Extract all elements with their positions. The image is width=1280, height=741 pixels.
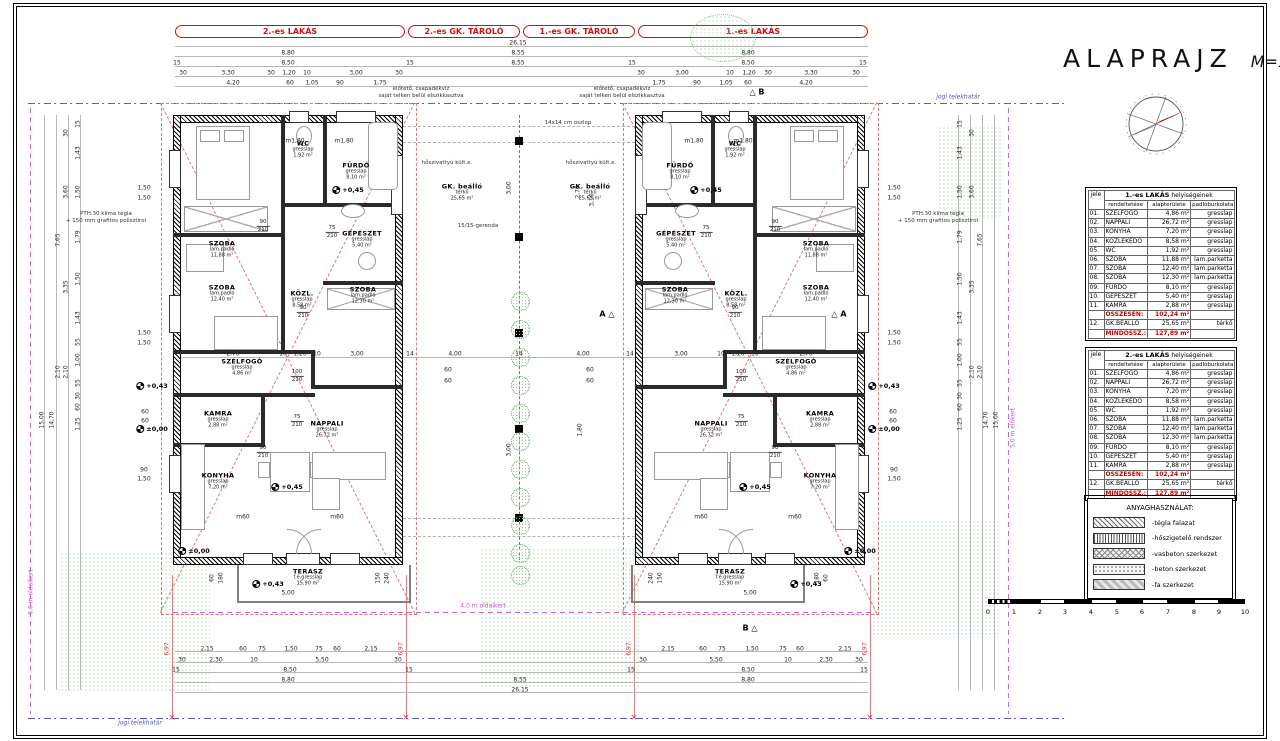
door-width: 90 [257, 445, 270, 452]
row-room: GK.BEÁLLÓ [1104, 480, 1147, 489]
table-row: MINDÖSSZ.:127,89 m² [1088, 489, 1234, 498]
dim-label: 15 [627, 667, 635, 674]
wall [635, 385, 727, 389]
level-icon [252, 580, 260, 588]
annotation: jogi telekhatár [118, 720, 162, 727]
window [718, 553, 752, 565]
room-label: SZOBAlam.padló11,88 m² [803, 241, 829, 260]
wall [635, 281, 715, 285]
table-row: 04.KÖZLEKEDŐ8,58 m²gresslap [1088, 397, 1234, 406]
scalebar-segment [1117, 599, 1142, 604]
row-number: 04. [1088, 397, 1104, 406]
level-marker: ±0,00 [178, 547, 209, 555]
window [336, 111, 376, 123]
material-label: -hőszigetelő rendszer [1152, 534, 1222, 542]
room-area: 1,92 m² [292, 154, 313, 160]
zone-band: 1.-es GK. TÁROLÓ [523, 25, 635, 38]
dim-label: 90 [140, 467, 148, 474]
dim-label: 30 [63, 129, 70, 137]
dim-label: 30 [267, 70, 275, 77]
wall [311, 385, 403, 389]
drawing-sheet: 2.-es LAKÁS2.-es GK. TÁROLÓ1.-es GK. TÁR… [0, 0, 1280, 741]
level-value: +0,43 [878, 382, 899, 390]
dim-label: 4,20 [799, 80, 812, 87]
dim-label: 7,65 [55, 233, 62, 246]
door-height: 210 [326, 232, 339, 240]
door-height: 210 [769, 226, 782, 234]
level-value: +0,43 [262, 580, 283, 588]
row-room: ÖSSZESEN: [1104, 471, 1147, 480]
wardrobe [184, 206, 268, 232]
scalebar-tick: 4 [1089, 608, 1093, 616]
annotation: A △ [599, 310, 614, 319]
room-area: 7,20 m² [804, 486, 837, 492]
dim-label: 15 [75, 120, 82, 128]
dim-label: 1,43 [75, 311, 82, 324]
room-area: 12,40 m² [209, 298, 235, 304]
level-value: ±0,00 [188, 547, 209, 555]
room-area: 12,30 m² [350, 300, 376, 306]
room-table-2: jele 2.-es LAKÁS helyiségeinek rendeltet… [1085, 347, 1237, 501]
level-icon [844, 547, 852, 555]
room-area: 1,92 m² [724, 154, 745, 160]
annotation: előtető, csapadékvíz [393, 86, 450, 92]
dim-label: m1,80 [285, 138, 304, 145]
row-number: 01. [1088, 369, 1104, 378]
row-room: KONYHA [1104, 388, 1147, 397]
dim-label: 8,50 [281, 60, 294, 67]
table-row: ÖSSZESEN:102,24 m² [1088, 471, 1234, 480]
room-area: 15,90 m² [293, 582, 323, 588]
zone-band-label: 2.-es GK. TÁROLÓ [424, 27, 503, 36]
room-area: 8,10 m² [342, 176, 369, 182]
materials-list: -tégla falazat-hőszigetelő rendszer-vasb… [1093, 517, 1227, 590]
level-icon [739, 483, 747, 491]
door-width: 75 [735, 414, 748, 421]
level-icon [868, 382, 876, 390]
row-floor [1191, 329, 1234, 338]
table-row: 05.WC1,92 m²gresslap [1088, 406, 1234, 415]
row-room: KONYHA [1104, 228, 1147, 237]
row-floor: lam.parketta [1191, 434, 1234, 443]
table-title: 2.-es LAKÁS helyiségeinek [1104, 350, 1234, 360]
dim-label: 2,15 [838, 646, 851, 653]
dim-label: m60 [330, 514, 343, 521]
row-number: 08. [1088, 434, 1104, 443]
window [286, 553, 320, 565]
dim-label: 5,50 [315, 657, 328, 664]
dim-line [175, 651, 868, 652]
level-marker: +0,43 [868, 382, 899, 390]
material-swatch [1093, 533, 1145, 544]
row-room: MINDÖSSZ.: [1104, 329, 1147, 338]
door-height: 210 [735, 376, 748, 384]
row-area: 2,88 m² [1147, 301, 1190, 310]
dim-label: 1,43 [75, 146, 82, 159]
shrub [511, 566, 530, 585]
dim-label: 60 [444, 367, 452, 374]
table-row: MINDÖSSZ.:127,89 m² [1088, 329, 1234, 338]
wall [753, 233, 865, 237]
table-row: 02.NAPPALI26,72 m²gresslap [1088, 379, 1234, 388]
pillow [818, 130, 838, 142]
row-number: 01. [1088, 209, 1104, 218]
zone-band-label: 1.-es GK. TÁROLÓ [539, 27, 618, 36]
row-number: 10. [1088, 292, 1104, 301]
material-swatch [1093, 548, 1145, 559]
table-row: ÖSSZESEN:102,24 m² [1088, 311, 1234, 320]
row-number: 11. [1088, 461, 1104, 470]
material-item: -fa szerkezet [1093, 579, 1227, 590]
table-row: 07.SZOBA12,40 m²lam.parketta [1088, 425, 1234, 434]
level-marker: +0,43 [136, 382, 167, 390]
room-area: 11,88 m² [803, 254, 829, 260]
room-area: 12,30 m² [662, 300, 688, 306]
row-area: 127,89 m² [1147, 329, 1190, 338]
room-area: 12,40 m² [803, 298, 829, 304]
row-number: 08. [1088, 274, 1104, 283]
dim-label: 2,10 [63, 365, 70, 378]
annotation: 5,0 m előkert [1010, 408, 1017, 448]
window [678, 553, 708, 565]
row-area: 26,72 m² [1147, 379, 1190, 388]
door-size-label: 75210 [700, 225, 713, 239]
dim-label: 1,00 [75, 353, 82, 366]
dim-label: 2,70 [226, 351, 239, 358]
room-label: TERASZf.é.gresslap15,90 m² [715, 569, 745, 588]
zone-band: 2.-es LAKÁS [175, 25, 405, 38]
dim-line [44, 115, 45, 690]
level-icon [136, 382, 144, 390]
door-size-label: 100210 [291, 369, 304, 383]
row-room: FÜRDŐ [1104, 443, 1147, 452]
row-floor: lam.parketta [1191, 255, 1234, 264]
dim-label: 15 [859, 60, 867, 67]
dim-label: 8,80 [281, 677, 294, 684]
row-floor: gresslap [1191, 209, 1234, 218]
level-icon [136, 425, 144, 433]
row-floor: gresslap [1191, 461, 1234, 470]
door-size-label: 90210 [769, 219, 782, 233]
door-height: 210 [291, 421, 304, 429]
material-swatch [1093, 564, 1145, 575]
room-label: KONYHAgresslap7,20 m² [202, 473, 235, 492]
annotation: PTH.30 klíma tégla [80, 211, 132, 217]
shrub [511, 516, 530, 535]
dim-label: 15 [406, 60, 414, 67]
row-number: 12. [1088, 480, 1104, 489]
scalebar-segment [1194, 599, 1219, 604]
dim-label: 2,10 [55, 365, 62, 378]
dim-label: 1,50 [887, 330, 900, 337]
scalebar-tick: 1 [1012, 608, 1016, 616]
dim-label: 55 [75, 379, 82, 387]
dim-label: 4,20 [226, 80, 239, 87]
dim-label: 2,15 [661, 646, 674, 653]
door-size-label: 75210 [735, 414, 748, 428]
dim-label: 60 [699, 646, 707, 653]
dim-label: 1,50 [137, 476, 150, 483]
annotation: × [402, 713, 410, 723]
door-width: 90 [257, 219, 270, 226]
level-marker: +0,45 [690, 186, 721, 194]
level-icon [690, 186, 698, 194]
dim-label: 75 [315, 646, 323, 653]
room-table-1: jele 1.-es LAKÁS helyiségeinek rendeltet… [1085, 187, 1237, 341]
dim-label: 90 [890, 467, 898, 474]
scalebar-tick: 6 [1140, 608, 1144, 616]
table-col-jele: jele [1088, 190, 1104, 209]
dim-label: 2,30 [209, 657, 222, 664]
dim-label: 240 [648, 572, 655, 583]
table-title-bold: 2.-es LAKÁS [1125, 351, 1169, 359]
row-number [1088, 311, 1104, 320]
row-floor: gresslap [1191, 452, 1234, 461]
door-width: 90 [729, 305, 742, 312]
window [289, 111, 309, 123]
row-floor: gresslap [1191, 406, 1234, 415]
dim-label: 1,50 [75, 272, 82, 285]
dim-label: 60 [75, 403, 82, 411]
material-swatch [1093, 579, 1145, 590]
level-value: +0,45 [749, 483, 770, 491]
material-swatch [1093, 517, 1145, 528]
annotation: + 150 mm grafitos polisztirol [898, 218, 978, 224]
dim-label: 60 [141, 418, 149, 425]
table-row: 09.FÜRDŐ8,10 m²gresslap [1088, 283, 1234, 292]
row-floor: gresslap [1191, 379, 1234, 388]
wall [173, 393, 315, 397]
level-value: +0,45 [342, 186, 363, 194]
window [765, 553, 795, 565]
setback-line [30, 108, 31, 714]
dim-label: 15 [173, 60, 181, 67]
room-area: 4,86 m² [221, 372, 262, 378]
dim-label: 75 [718, 646, 726, 653]
shrub [511, 460, 530, 479]
dim-label: 1,75 [373, 80, 386, 87]
room-label: KAMRAgresslap2,88 m² [806, 411, 834, 430]
bed [214, 316, 278, 350]
level-marker: ±0,00 [844, 547, 875, 555]
dim-label: 3,35 [969, 280, 976, 293]
dim-label: 240 [384, 572, 391, 583]
window [243, 553, 273, 565]
row-number [1088, 489, 1104, 498]
dim-line [68, 115, 69, 690]
row-number: 07. [1088, 425, 1104, 434]
annotation: saját telken belül elszikkasztva [579, 93, 664, 99]
material-item: -beton szerkezet [1093, 564, 1227, 575]
dim-label: 8,55 [511, 60, 524, 67]
dim-label: 90 [693, 80, 701, 87]
dim-label: 3,00 [506, 181, 513, 194]
level-value: ±0,00 [146, 425, 167, 433]
table-title: 1.-es LAKÁS helyiségeinek [1104, 190, 1234, 200]
dim-label: 75 [779, 646, 787, 653]
dim-label: 1,50 [137, 185, 150, 192]
dim-label: 3,35 [63, 280, 70, 293]
row-number: 03. [1088, 228, 1104, 237]
scalebar-tick: 8 [1192, 608, 1196, 616]
scalebar-tick: 5 [1115, 608, 1119, 616]
row-area: 12,30 m² [1147, 434, 1190, 443]
row-area: 8,58 m² [1147, 397, 1190, 406]
scalebar-tick: 7 [1166, 608, 1170, 616]
table-row: 12.GK.BEÁLLÓ25,65 m²térkő [1088, 320, 1234, 329]
room-label: SZÉLFOGÓgresslap4,86 m² [221, 359, 262, 378]
table-row: 11.KAMRA2,88 m²gresslap [1088, 461, 1234, 470]
row-room: SZOBA [1104, 274, 1147, 283]
dim-label: 1,50 [957, 185, 964, 198]
dim-label: 30 [957, 392, 964, 400]
dim-label: 2,70 [799, 351, 812, 358]
dim-label: 60 [239, 646, 247, 653]
dim-label: 15 [957, 120, 964, 128]
row-room: KAMRA [1104, 301, 1147, 310]
dim-label: 14,70 [983, 411, 990, 428]
window [729, 111, 749, 123]
row-area: 8,10 m² [1147, 443, 1190, 452]
materials-legend: ANYAGHASZNÁLAT: -tégla falazat-hőszigete… [1087, 498, 1233, 599]
dim-line [982, 115, 983, 690]
sofa [654, 452, 728, 480]
door-width: 75 [291, 414, 304, 421]
room-label: NAPPALIgresslap26,72 m² [694, 421, 727, 440]
table-row: 09.FÜRDŐ8,10 m²gresslap [1088, 443, 1234, 452]
dim-label: 15 [860, 667, 868, 674]
row-room: KÖZLEKEDŐ [1104, 237, 1147, 246]
dim-label: 1,20 [293, 351, 306, 358]
row-room: GÉPÉSZET [1104, 292, 1147, 301]
dim-label: m1,80 [733, 138, 752, 145]
row-floor: gresslap [1191, 388, 1234, 397]
dim-label: 10 [726, 70, 734, 77]
annotation: PTH.30 klíma tégla [912, 211, 964, 217]
annotation: 4,0 m oldalkert [460, 603, 505, 610]
dim-label: 1,25 [75, 417, 82, 430]
row-floor: lam.parketta [1191, 274, 1234, 283]
dim-label: 2,10 [969, 365, 976, 378]
scalebar-segment [1040, 599, 1065, 604]
dim-label: 150 [375, 572, 382, 583]
annotation: 6,97 [626, 642, 633, 655]
door-width: 100 [291, 369, 304, 376]
dim-label: 30 [75, 392, 82, 400]
room-area: 26,72 m² [694, 434, 727, 440]
table-row: 01.SZÉLFOGÓ4,86 m²gresslap [1088, 209, 1234, 218]
level-marker: +0,43 [790, 580, 821, 588]
row-area: 11,88 m² [1147, 255, 1190, 264]
row-number: 02. [1088, 219, 1104, 228]
level-value: ±0,00 [854, 547, 875, 555]
dim-label: m1,80 [334, 138, 353, 145]
row-room: WC [1104, 246, 1147, 255]
dim-label: 60 [957, 403, 964, 411]
row-area: 5,40 m² [1147, 292, 1190, 301]
dim-label: 3,00 [675, 70, 688, 77]
pillow [200, 130, 220, 142]
row-floor [1191, 489, 1234, 498]
dim-label: 15,00 [39, 411, 46, 428]
table-row: 10.GÉPÉSZET5,40 m²gresslap [1088, 452, 1234, 461]
dim-label: 10 [751, 351, 759, 358]
dim-label: 1,79 [957, 230, 964, 243]
door-height: 210 [257, 452, 270, 460]
dim-label: 5,50 [709, 657, 722, 664]
dim-label: 30 [852, 70, 860, 77]
table-row: 08.SZOBA12,30 m²lam.parketta [1088, 274, 1234, 283]
scale-label: M=1:100 [1251, 52, 1280, 71]
row-floor: térkő [1191, 480, 1234, 489]
scalebar-segment [1065, 599, 1091, 604]
grass-patch [872, 520, 1000, 638]
window [169, 455, 181, 493]
dim-label: 10 [717, 351, 725, 358]
level-marker: ±0,00 [136, 425, 167, 433]
annotation: △ A [831, 310, 846, 319]
dim-label: 1,50 [887, 195, 900, 202]
table-row: 06.SZOBA11,88 m²lam.parketta [1088, 255, 1234, 264]
dim-label: 30 [764, 70, 772, 77]
table-row: 05.WC1,92 m²gresslap [1088, 246, 1234, 255]
drawing-title: ALAPRAJZ M=1:100 [1063, 44, 1280, 73]
table-title-rest: helyiségeinek [1171, 352, 1212, 359]
dim-label: 2,70 [575, 185, 582, 198]
row-room: KÖZLEKEDŐ [1104, 397, 1147, 406]
row-area: 127,89 m² [1147, 489, 1190, 498]
dim-label: 10 [303, 70, 311, 77]
row-area: 12,30 m² [1147, 274, 1190, 283]
sink [675, 204, 699, 218]
row-floor: gresslap [1191, 369, 1234, 378]
dim-label: 4,00 [576, 351, 589, 358]
dim-label: 10 [784, 657, 792, 664]
door-height: 210 [769, 452, 782, 460]
annotation: előtető, csapadékvíz [594, 86, 651, 92]
dim-label: 8,80 [741, 677, 754, 684]
annotation: jogi telekhatár [936, 94, 980, 101]
row-room: NAPPALI [1104, 379, 1147, 388]
dim-label: 10 [279, 351, 287, 358]
shrub [511, 292, 530, 311]
row-area: 102,24 m² [1147, 311, 1190, 320]
dim-line [970, 115, 971, 690]
row-room: GÉPÉSZET [1104, 452, 1147, 461]
level-icon [868, 425, 876, 433]
table-row: 12.GK.BEÁLLÓ25,65 m²térkő [1088, 480, 1234, 489]
dim-label: 30 [178, 657, 186, 664]
material-label: -tégla falazat [1152, 519, 1195, 527]
dim-label: 2,15 [200, 646, 213, 653]
dim-label: 3,00 [350, 351, 363, 358]
level-marker: ±0,00 [868, 425, 899, 433]
room-area: 25,65 m² [442, 197, 482, 203]
door-height: 210 [297, 312, 310, 320]
dim-label: 3,60 [969, 185, 976, 198]
row-floor: lam.parketta [1191, 415, 1234, 424]
table-col-header: padlóburkolata [1191, 360, 1234, 369]
dim-label: 15 [172, 667, 180, 674]
door-height: 210 [735, 421, 748, 429]
grass-patch [480, 548, 640, 688]
level-marker: +0,43 [252, 580, 283, 588]
dim-label: 8,50 [283, 667, 296, 674]
dim-label: 15 [628, 60, 636, 67]
wall [723, 393, 865, 397]
table-row: 06.SZOBA11,88 m²lam.parketta [1088, 415, 1234, 424]
window [857, 295, 869, 333]
